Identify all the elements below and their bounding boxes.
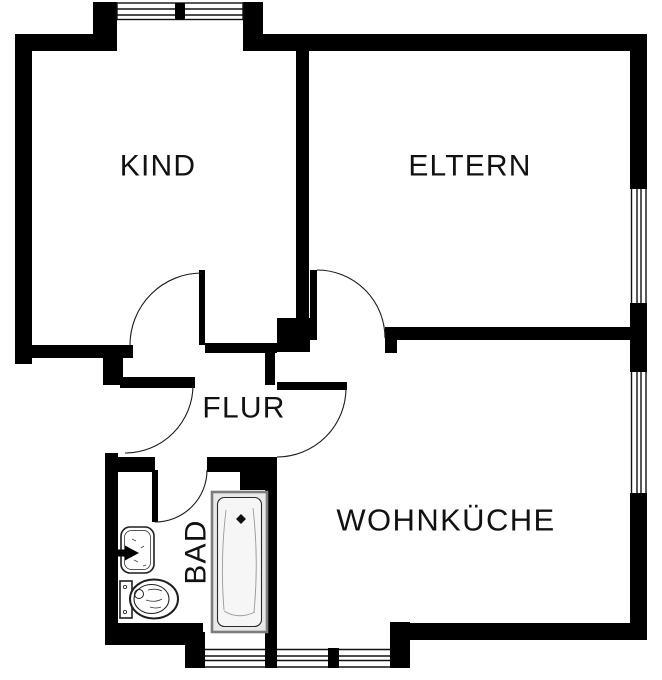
wall-wk-bottom bbox=[400, 623, 647, 640]
wall-top-left bbox=[15, 34, 103, 51]
wall-left-upper bbox=[15, 34, 32, 364]
toilet-icon bbox=[120, 580, 178, 619]
label-room-kind: KIND bbox=[120, 150, 196, 183]
floorplan-svg: KIND ELTERN FLUR BAD WOHNKÜCHE bbox=[0, 0, 662, 680]
wall-kind-bottom bbox=[15, 345, 133, 358]
wall-flur-wk-upper bbox=[265, 353, 275, 385]
wall-eltern-bottom-notch bbox=[385, 327, 397, 353]
bathtub-icon bbox=[212, 492, 267, 632]
floorplan-page: KIND ELTERN FLUR BAD WOHNKÜCHE bbox=[0, 0, 662, 680]
wall-bad-bottom-block bbox=[185, 632, 205, 668]
wall-top-right bbox=[263, 34, 647, 51]
wall-divider-foot bbox=[277, 318, 310, 352]
label-room-bad: BAD bbox=[180, 519, 213, 584]
wall-window-pier-right bbox=[243, 2, 263, 51]
wall-right-1 bbox=[630, 51, 647, 189]
wall-right-3 bbox=[630, 493, 647, 640]
wall-flur-top bbox=[205, 343, 277, 353]
label-room-flur: FLUR bbox=[202, 392, 285, 425]
wall-bad-top-right bbox=[207, 457, 265, 472]
wall-eltern-bottom bbox=[385, 327, 647, 340]
wall-left-lower bbox=[105, 453, 118, 645]
wall-divider-kind-eltern bbox=[296, 51, 309, 345]
wall-window-pier-left bbox=[93, 2, 117, 51]
label-room-wohnkueche: WOHNKÜCHE bbox=[336, 503, 555, 538]
wall-bottom-mullion bbox=[328, 648, 339, 668]
wall-bad-top-left bbox=[112, 457, 155, 472]
label-room-eltern: ELTERN bbox=[408, 150, 531, 183]
